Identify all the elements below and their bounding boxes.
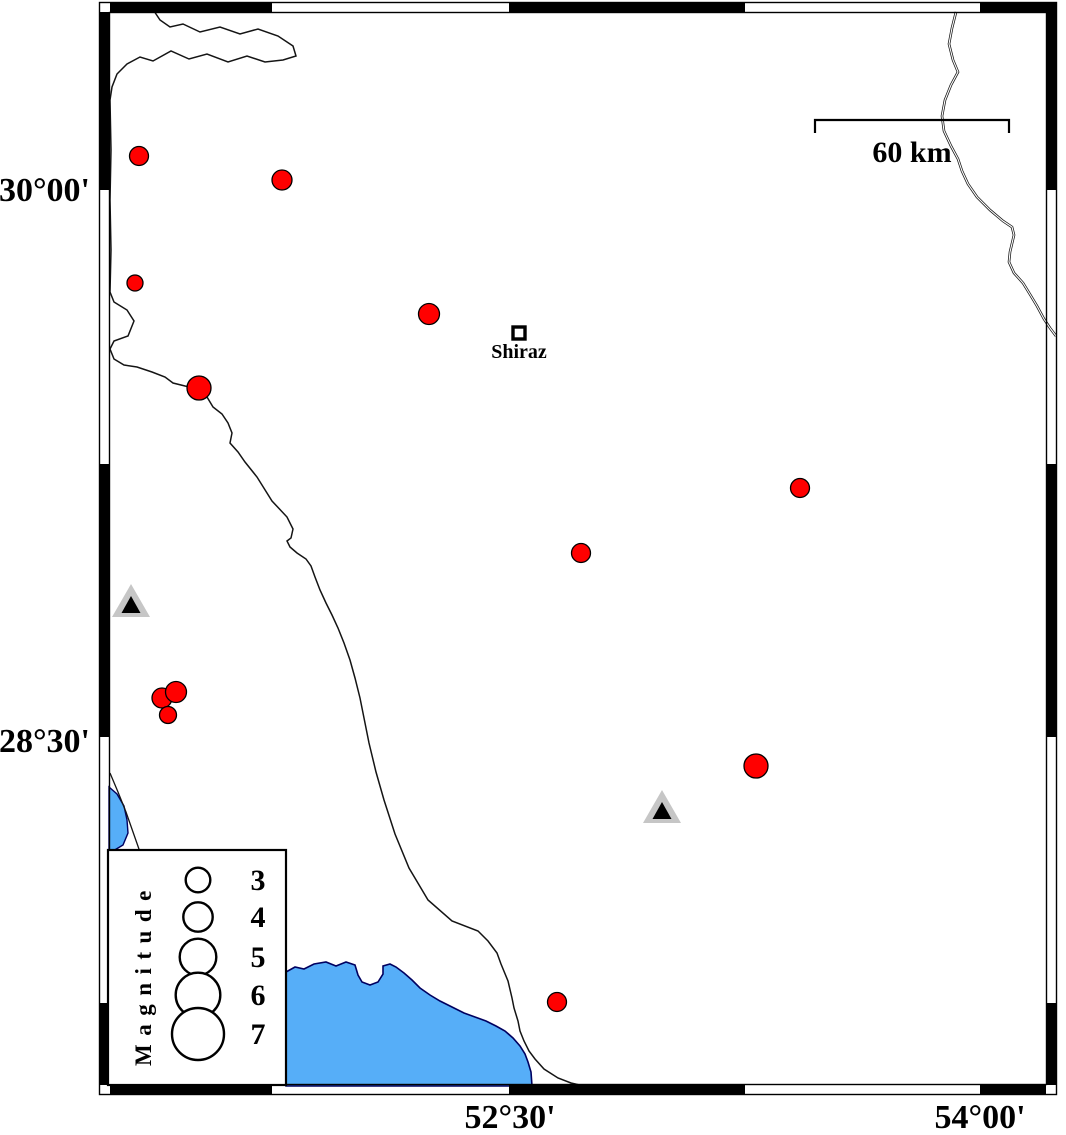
legend-title: Magnitude (131, 882, 156, 1066)
frame-segment-top (110, 2, 272, 13)
legend-magnitude-circle (186, 868, 211, 893)
longitude-label: 54°00' (934, 1099, 1025, 1135)
earthquake-marker (130, 147, 149, 166)
frame-segment-left (99, 464, 110, 737)
legend-magnitude-label: 6 (251, 979, 266, 1012)
latitude-label: 28°30' (0, 723, 90, 760)
earthquake-marker (548, 993, 567, 1012)
earthquake-marker (744, 754, 768, 778)
map-canvas: 60 kmShirazMagnitude3456730°00'28°30'52°… (0, 0, 1066, 1135)
legend-magnitude-circle (180, 939, 217, 976)
latitude-label: 30°00' (0, 172, 90, 209)
earthquake-marker (791, 479, 810, 498)
legend-magnitude-circle (183, 902, 212, 931)
frame-segment-right (1046, 464, 1057, 737)
earthquake-marker (272, 170, 292, 190)
seismicity-map-figure: 60 kmShirazMagnitude3456730°00'28°30'52°… (0, 0, 1066, 1135)
frame-segment-left (99, 12, 110, 190)
legend-magnitude-label: 5 (251, 941, 266, 974)
longitude-label: 52°30' (464, 1099, 555, 1135)
frame-segment-top (980, 2, 1056, 13)
earthquake-marker (572, 544, 591, 563)
scale-bar-label: 60 km (872, 136, 951, 169)
earthquake-marker (419, 304, 440, 325)
earthquake-marker (160, 707, 177, 724)
legend-magnitude-label: 4 (251, 901, 266, 934)
legend-magnitude-label: 3 (251, 864, 266, 897)
legend-magnitude-circle (172, 1008, 224, 1060)
frame-segment-right (1046, 1003, 1057, 1085)
legend-magnitude-label: 7 (251, 1018, 266, 1051)
frame-segment-right (1046, 3, 1057, 190)
earthquake-marker (166, 682, 187, 703)
frame-segment-bottom (980, 1084, 1046, 1095)
earthquake-marker (127, 275, 143, 291)
earthquake-marker (187, 376, 211, 400)
frame-segment-bottom (509, 1084, 745, 1095)
frame-segment-top (509, 2, 745, 13)
city-label: Shiraz (491, 341, 547, 363)
city-marker (513, 327, 525, 339)
